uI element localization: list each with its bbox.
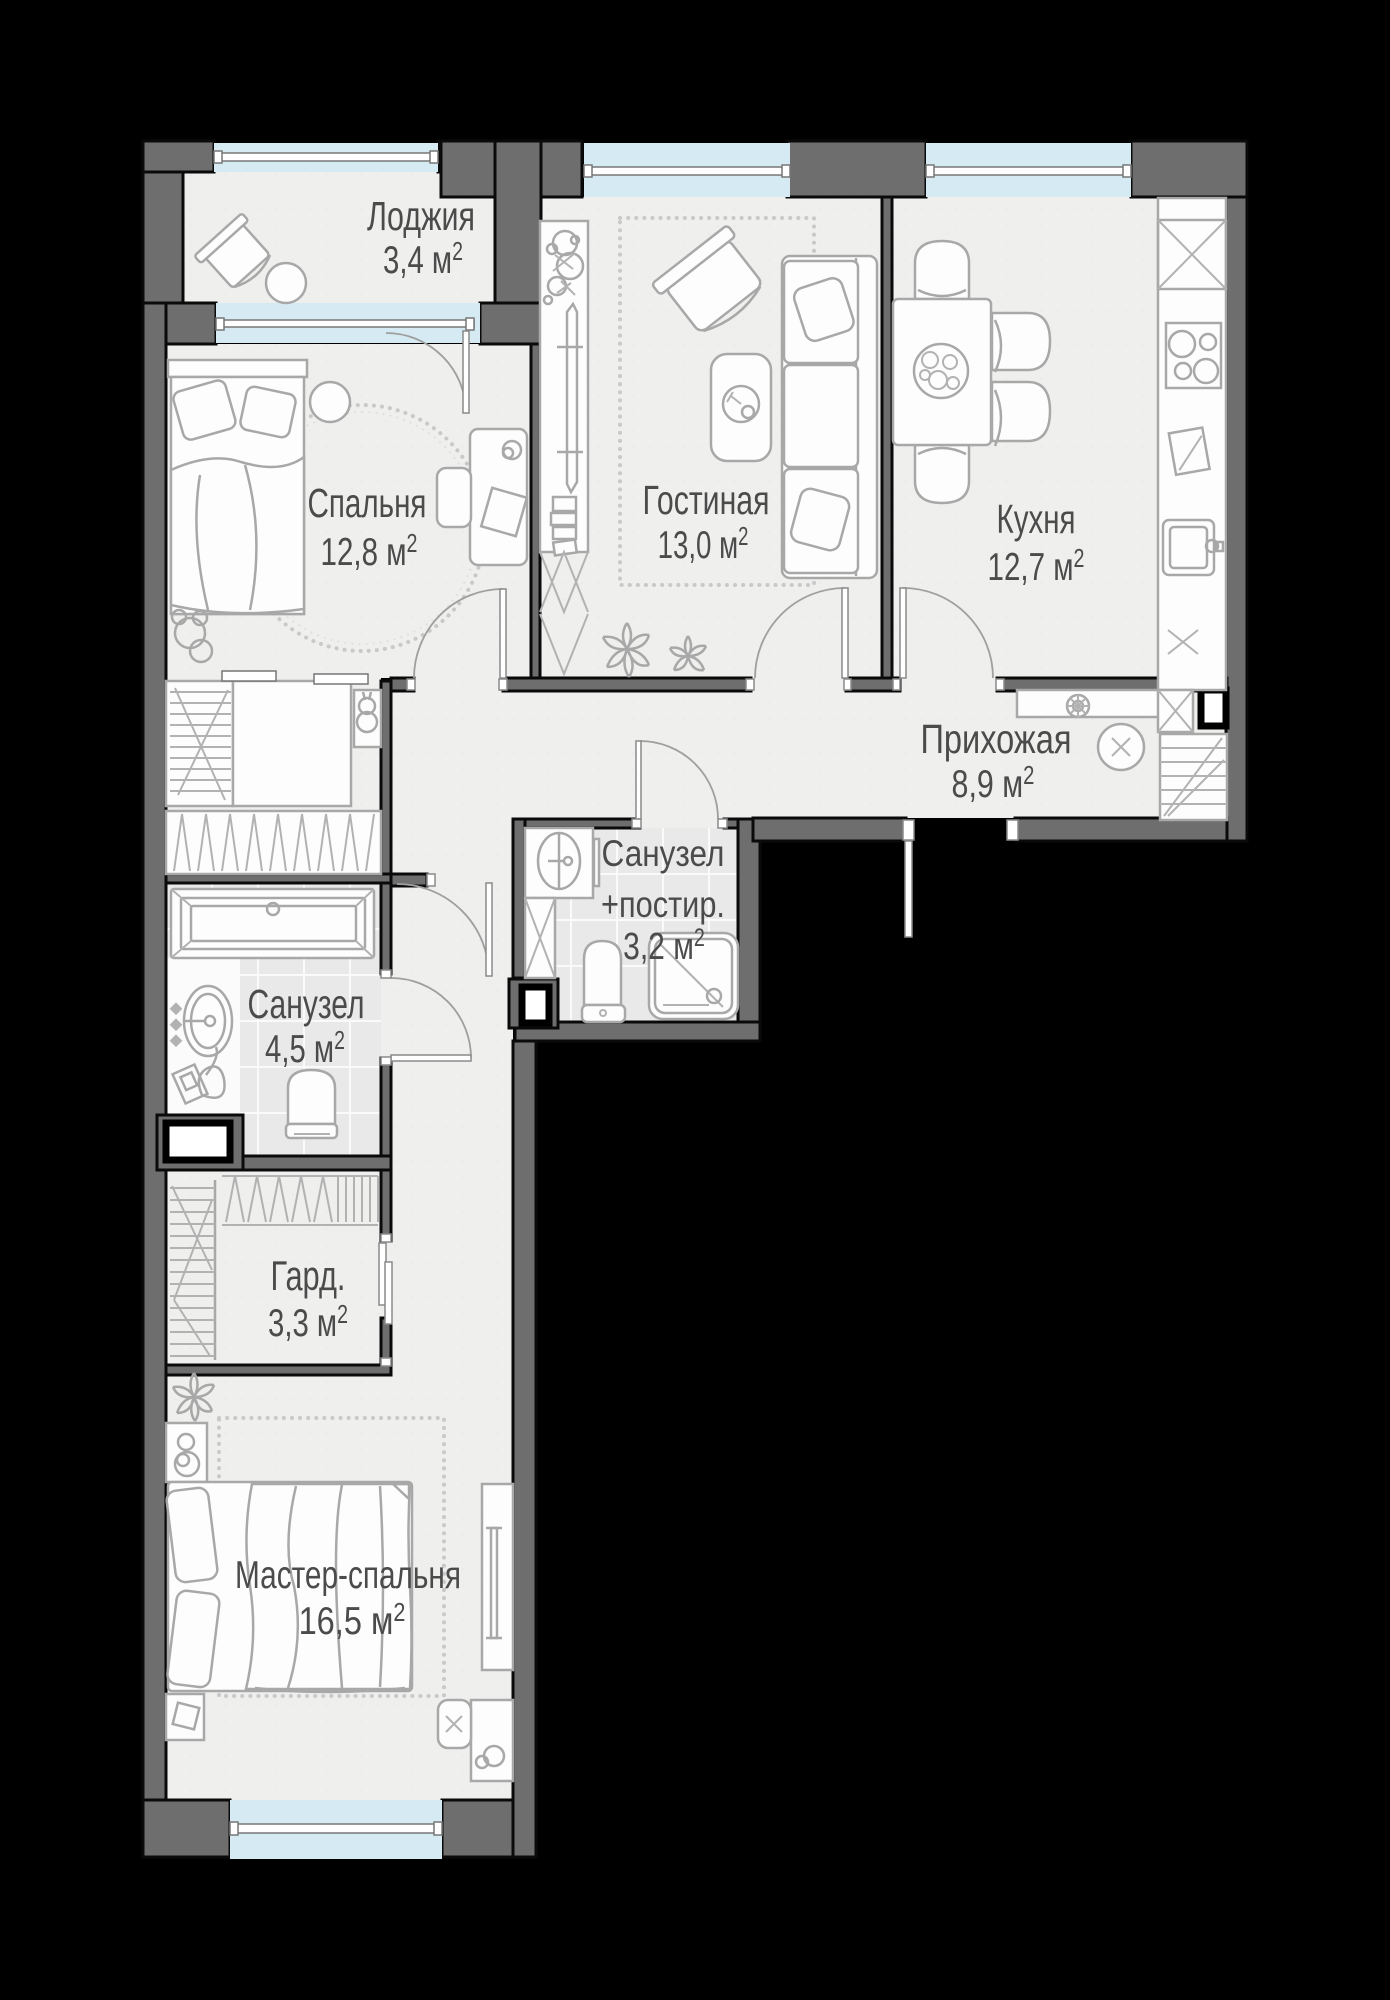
svg-text:8,9 м2: 8,9 м2 — [952, 761, 1035, 806]
svg-text:3,2 м2: 3,2 м2 — [623, 924, 705, 968]
svg-text:12,7 м2: 12,7 м2 — [988, 543, 1085, 589]
svg-text:+постир.: +постир. — [601, 884, 725, 925]
svg-text:12,8 м2: 12,8 м2 — [321, 528, 418, 574]
svg-text:Санузел: Санузел — [247, 980, 364, 1027]
svg-text:Гостиная: Гостиная — [643, 476, 770, 523]
svg-text:16,5 м2: 16,5 м2 — [299, 1598, 406, 1643]
svg-text:Мастер-спальня: Мастер-спальня — [235, 1554, 461, 1597]
svg-text:Лоджия: Лоджия — [367, 193, 475, 240]
svg-text:3,4 м2: 3,4 м2 — [383, 236, 463, 282]
svg-text:13,0 м2: 13,0 м2 — [658, 522, 749, 567]
svg-text:3,3 м2: 3,3 м2 — [268, 1299, 348, 1345]
svg-text:Кухня: Кухня — [997, 496, 1076, 542]
svg-text:Спальня: Спальня — [308, 480, 427, 526]
svg-text:Гард.: Гард. — [271, 1252, 346, 1299]
svg-text:Санузел: Санузел — [602, 834, 725, 875]
svg-text:Прихожая: Прихожая — [921, 715, 1072, 761]
svg-text:4,5 м2: 4,5 м2 — [265, 1025, 345, 1071]
